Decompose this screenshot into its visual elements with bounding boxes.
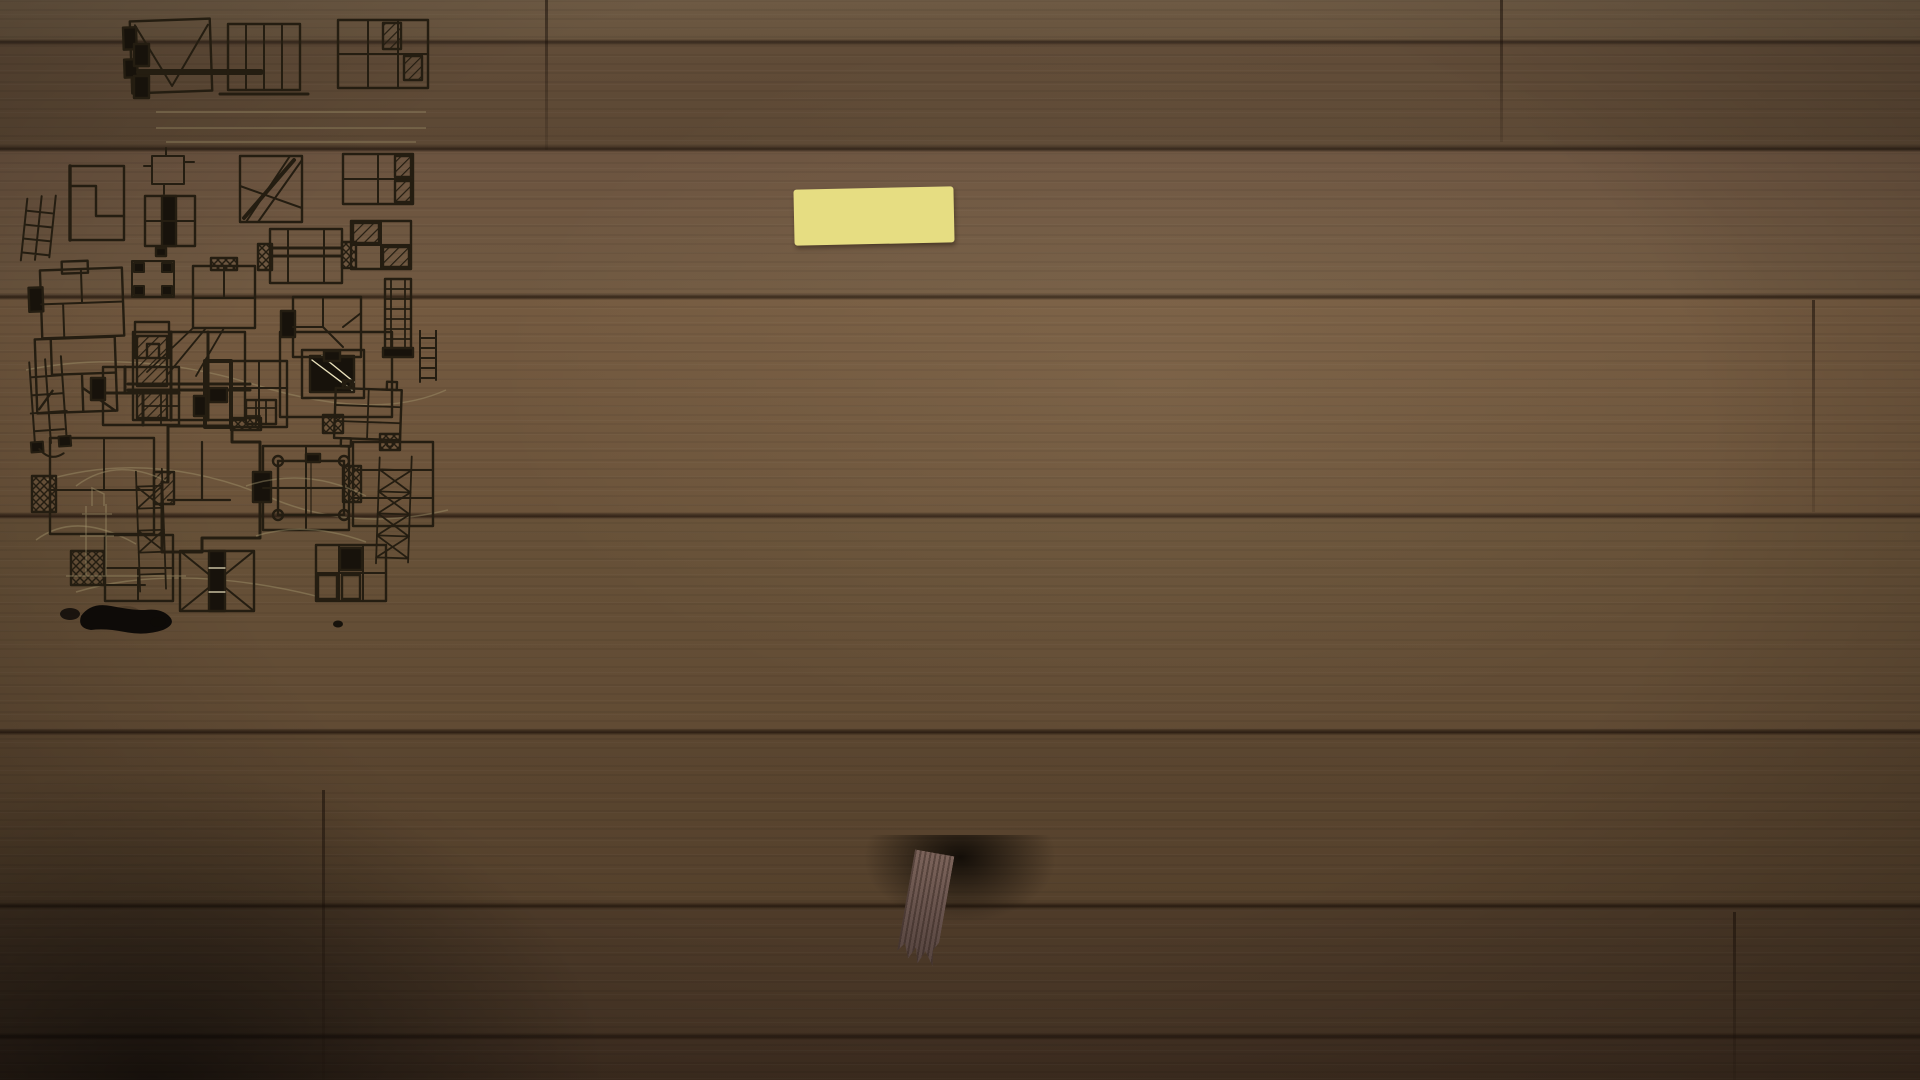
sticky-tab xyxy=(793,186,954,245)
plan-sketch xyxy=(240,156,302,222)
table-plan-sketch xyxy=(273,454,349,520)
filled-core xyxy=(134,44,149,66)
plank-joint xyxy=(1812,300,1815,512)
hatched-core xyxy=(380,434,400,450)
plan-sketch xyxy=(70,166,124,240)
ladder-sketch xyxy=(25,356,72,458)
plan-sketch xyxy=(28,260,125,339)
plan-sketch xyxy=(144,148,194,194)
plank-joint xyxy=(322,790,325,1080)
photo-scene: 150419_ BRUNO ~ pres. Tower ~ Mexic plat… xyxy=(0,0,1920,1080)
plan-sketch xyxy=(338,20,428,88)
ink-blot xyxy=(60,605,172,633)
braced-column-sketch xyxy=(376,455,412,564)
plan-sketch xyxy=(132,261,174,297)
plan-sketch xyxy=(194,361,287,430)
filled-core xyxy=(134,76,149,98)
plank-joint xyxy=(1500,0,1503,142)
plan-sketch xyxy=(91,367,179,425)
plan-sketch xyxy=(281,297,361,361)
spine-gap-shadow xyxy=(860,835,1060,925)
plan-sketch xyxy=(351,221,411,269)
hatched-core xyxy=(323,415,343,433)
plank-joint xyxy=(545,0,548,150)
right-page-sketches xyxy=(6,16,452,640)
plan-sketch xyxy=(343,154,413,204)
ladder-sketch xyxy=(21,193,56,264)
plan-sketch xyxy=(258,229,356,283)
plank-joint xyxy=(1733,912,1736,1080)
plan-sketch xyxy=(220,24,308,94)
tower-sketch xyxy=(383,279,413,357)
plan-sketch xyxy=(135,258,255,376)
pencil-underlay xyxy=(66,112,426,576)
plan-sketch xyxy=(145,196,195,256)
braced-ladder-sketch xyxy=(136,469,166,592)
